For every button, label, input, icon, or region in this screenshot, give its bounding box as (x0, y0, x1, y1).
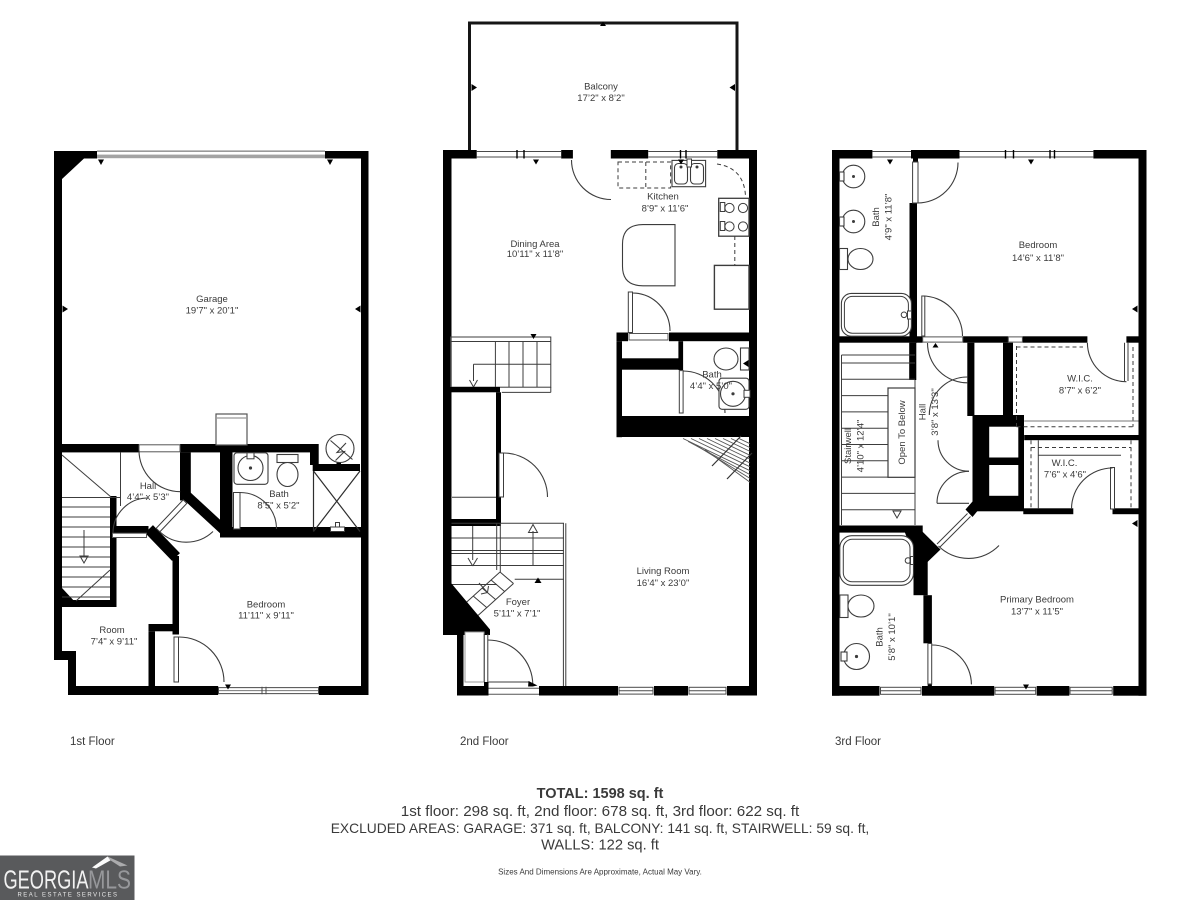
svg-text:3rd Floor: 3rd Floor (835, 736, 881, 748)
svg-text:4’4" x 5’3": 4’4" x 5’3" (127, 492, 169, 503)
svg-text:Bath: Bath (875, 627, 886, 647)
svg-text:Sizes And Dimensions Are Appro: Sizes And Dimensions Are Approximate, Ac… (498, 868, 702, 877)
svg-text:Bedroom: Bedroom (247, 600, 286, 611)
svg-text:Bedroom: Bedroom (1019, 240, 1058, 251)
svg-text:3’8" x 13’3": 3’8" x 13’3" (930, 388, 941, 435)
svg-text:7’4" x 9’11": 7’4" x 9’11" (91, 637, 138, 648)
svg-text:10’11" x 11’8": 10’11" x 11’8" (507, 249, 564, 260)
svg-text:1st Floor: 1st Floor (70, 736, 115, 748)
svg-text:11’11" x 9’11": 11’11" x 9’11" (238, 611, 294, 622)
svg-text:MLS: MLS (88, 865, 131, 895)
svg-text:EXCLUDED AREAS: GARAGE: 371 sq: EXCLUDED AREAS: GARAGE: 371 sq. ft, BALC… (331, 821, 870, 836)
svg-text:Open To Below: Open To Below (897, 400, 908, 464)
svg-text:GEORGIA: GEORGIA (4, 865, 89, 895)
svg-text:4’10" x 12’4": 4’10" x 12’4" (856, 420, 867, 473)
svg-text:5’8" x 10’1": 5’8" x 10’1" (887, 613, 898, 660)
svg-text:Stairwell: Stairwell (843, 428, 854, 464)
svg-text:Living Room: Living Room (637, 566, 690, 577)
svg-text:Room: Room (99, 625, 124, 636)
svg-text:19’7" x 20’1": 19’7" x 20’1" (186, 306, 239, 317)
svg-text:17’2" x 8’2": 17’2" x 8’2" (577, 93, 624, 104)
svg-text:5’11" x 7’1": 5’11" x 7’1" (494, 609, 541, 620)
svg-text:WALLS: 122 sq. ft: WALLS: 122 sq. ft (541, 838, 659, 854)
svg-text:Balcony: Balcony (584, 82, 618, 93)
svg-text:2nd Floor: 2nd Floor (460, 736, 509, 748)
svg-text:Bath: Bath (702, 370, 722, 381)
svg-text:1st floor: 298 sq. ft, 2nd flo: 1st floor: 298 sq. ft, 2nd floor: 678 sq… (401, 803, 800, 820)
svg-text:4’9" x 11’8": 4’9" x 11’8" (884, 194, 895, 241)
svg-text:REAL ESTATE SERVICES: REAL ESTATE SERVICES (18, 893, 119, 899)
svg-text:TOTAL: 1598 sq. ft: TOTAL: 1598 sq. ft (537, 786, 664, 802)
svg-text:W.I.C.: W.I.C. (1052, 458, 1078, 469)
svg-text:8’7" x 6’2": 8’7" x 6’2" (1059, 386, 1101, 397)
svg-text:8’5" x 5’2": 8’5" x 5’2" (257, 501, 299, 512)
svg-text:14’6" x 11’8": 14’6" x 11’8" (1012, 253, 1064, 264)
svg-text:Bath: Bath (871, 207, 882, 227)
svg-text:W.I.C.: W.I.C. (1067, 374, 1093, 385)
svg-text:4’4" x 5’0": 4’4" x 5’0" (690, 381, 732, 392)
svg-text:16’4" x 23’0": 16’4" x 23’0" (637, 578, 690, 589)
svg-text:8’9" x 11’6": 8’9" x 11’6" (642, 204, 689, 215)
svg-text:Kitchen: Kitchen (647, 192, 679, 203)
svg-text:Bath: Bath (269, 489, 289, 500)
svg-text:Foyer: Foyer (506, 597, 530, 608)
svg-text:7’6" x 4’6": 7’6" x 4’6" (1044, 470, 1086, 481)
svg-text:Garage: Garage (196, 294, 228, 305)
svg-text:13’7" x 11’5": 13’7" x 11’5" (1011, 607, 1063, 618)
svg-text:Hall: Hall (140, 481, 156, 492)
svg-text:Hall: Hall (918, 404, 929, 420)
svg-text:Primary Bedroom: Primary Bedroom (1000, 595, 1074, 606)
